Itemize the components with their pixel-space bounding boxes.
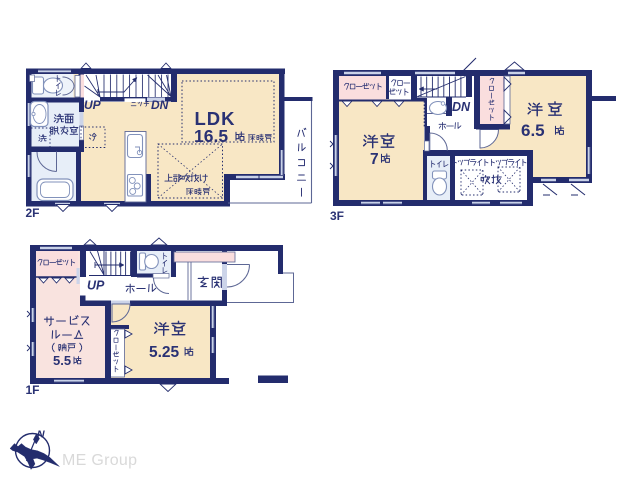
- svg-text:DN: DN: [151, 98, 169, 112]
- svg-text:UP: UP: [87, 279, 105, 293]
- svg-text:1F: 1F: [26, 383, 40, 397]
- svg-text:DN: DN: [452, 100, 471, 114]
- svg-text:6.5: 6.5: [521, 121, 545, 140]
- svg-text:7: 7: [370, 151, 379, 168]
- svg-text:5.25: 5.25: [149, 344, 180, 361]
- svg-text:2F: 2F: [26, 206, 40, 220]
- svg-text:N: N: [37, 429, 45, 441]
- svg-text:3F: 3F: [330, 209, 344, 223]
- svg-text:ME Group: ME Group: [62, 452, 137, 469]
- svg-text:16.5: 16.5: [194, 126, 228, 146]
- svg-text:UP: UP: [84, 98, 102, 112]
- svg-text:5.5: 5.5: [53, 353, 71, 368]
